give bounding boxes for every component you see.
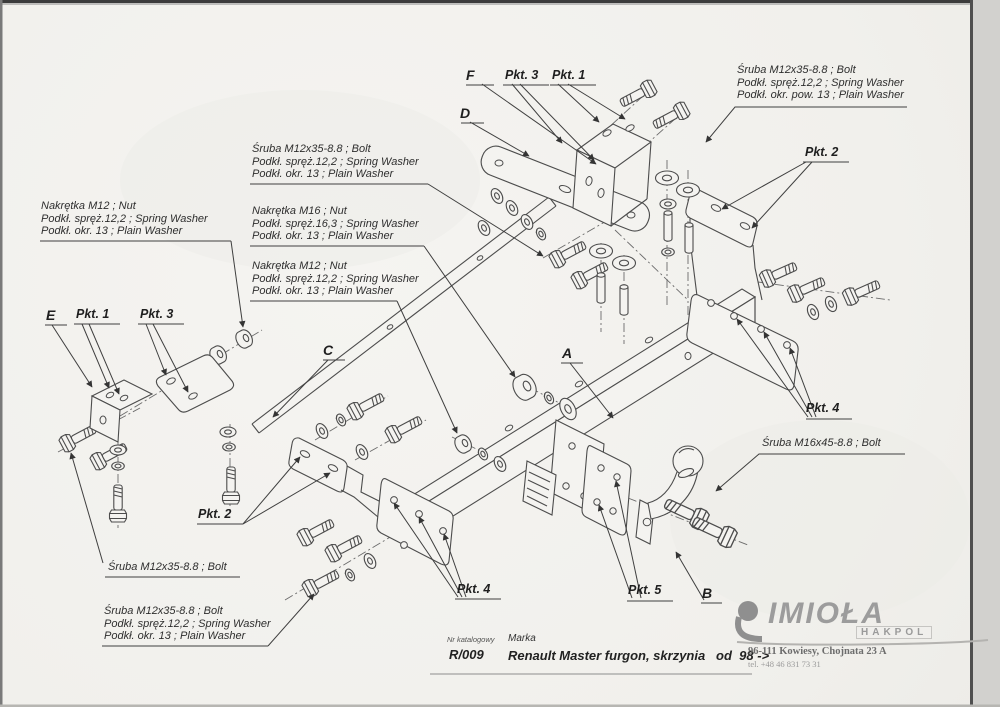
note-line: Podkł. spręż.12,2 ; Spring Washer	[252, 156, 419, 169]
note-line: Podkł. spręż.16,3 ; Spring Washer	[252, 218, 419, 231]
note-line: Podkł. okr. 13 ; Plain Washer	[252, 168, 419, 181]
catalog-sticker	[523, 461, 556, 515]
note-line: Nakrętka M12 ; Nut	[41, 200, 208, 213]
catalog-number-value: R/009	[449, 647, 484, 662]
brand-label: Marka	[508, 633, 536, 644]
note-line: Śruba M12x35-8.8 ; Bolt	[737, 64, 904, 77]
pkt4-label-bottom: Pkt. 4	[457, 582, 490, 596]
pkt1-label-top: Pkt. 1	[552, 68, 585, 82]
pkt5-label: Pkt. 5	[628, 583, 661, 597]
ref-label-e: E	[46, 307, 55, 323]
arm-c-upper-flange	[289, 438, 381, 517]
ref-label-f: F	[466, 67, 475, 83]
ref-label-c: C	[323, 342, 333, 358]
note-nut-m12-left: Nakrętka M12 ; Nut Podkł. spręż.12,2 ; S…	[41, 200, 208, 238]
note-line: Śruba M12x35-8.8 ; Bolt	[104, 605, 271, 618]
note-bottom-bolt-full: Śruba M12x35-8.8 ; Bolt Podkł. spręż.12,…	[104, 605, 271, 643]
vehicle-model: Renault Master furgon, skrzynia od 98 ->	[508, 648, 769, 663]
brand-phone: tel. +48 46 831 73 31	[748, 659, 821, 669]
note-line: Podkł. okr. 13 ; Plain Washer	[252, 230, 419, 243]
note-line: Nakrętka M16 ; Nut	[252, 205, 419, 218]
pkt4-label-right: Pkt. 4	[806, 401, 839, 415]
note-bottom-bolt: Śruba M12x35-8.8 ; Bolt	[108, 561, 227, 574]
note-line: Podkł. spręż.12,2 ; Spring Washer	[104, 618, 271, 631]
scanned-technical-drawing: Śruba M12x35-8.8 ; Bolt Podkł. spręż.12,…	[0, 0, 1000, 707]
note-line: Podkł. okr. 13 ; Plain Washer	[104, 630, 271, 643]
note-line: Śruba M12x35-8.8 ; Bolt	[108, 561, 227, 574]
note-line: Podkł. okr. 13 ; Plain Washer	[252, 285, 419, 298]
note-line: Podkł. spręż.12,2 ; Spring Washer	[252, 273, 419, 286]
brand-subname: HAKPOL	[856, 626, 932, 639]
note-line: Podkł. okr. pow. 13 ; Plain Washer	[737, 89, 904, 102]
pkt3-label-top: Pkt. 3	[505, 68, 538, 82]
note-mid-bolt: Śruba M12x35-8.8 ; Bolt Podkł. spręż.12,…	[252, 143, 419, 181]
note-line: Podkł. spręż.12,2 ; Spring Washer	[41, 213, 208, 226]
pkt3-label-left: Pkt. 3	[140, 307, 173, 321]
catalog-number-label: Nr katalogowy	[447, 635, 495, 644]
note-line: Podkł. okr. 13 ; Plain Washer	[41, 225, 208, 238]
brand-address: 96-111 Kowiesy, Chojnata 23 A	[748, 646, 887, 657]
note-top-right: Śruba M12x35-8.8 ; Bolt Podkł. spręż.12,…	[737, 64, 904, 102]
note-line: Śruba M12x35-8.8 ; Bolt	[252, 143, 419, 156]
bracket-e	[90, 355, 234, 442]
ref-label-a: A	[562, 345, 572, 361]
pkt1-label-left: Pkt. 1	[76, 307, 109, 321]
note-bolt-m16x45: Śruba M16x45-8.8 ; Bolt	[762, 437, 881, 450]
ref-label-d: D	[460, 105, 470, 121]
note-nut-m16: Nakrętka M16 ; Nut Podkł. spręż.16,3 ; S…	[252, 205, 419, 243]
note-line: Podkł. spręż.12,2 ; Spring Washer	[737, 77, 904, 90]
pkt2-label-left: Pkt. 2	[198, 507, 231, 521]
ref-label-b: B	[702, 585, 712, 601]
note-nut-m12-mid: Nakrętka M12 ; Nut Podkł. spręż.12,2 ; S…	[252, 260, 419, 298]
note-line: Śruba M16x45-8.8 ; Bolt	[762, 437, 881, 450]
note-line: Nakrętka M12 ; Nut	[252, 260, 419, 273]
pkt2-label-right: Pkt. 2	[805, 145, 838, 159]
